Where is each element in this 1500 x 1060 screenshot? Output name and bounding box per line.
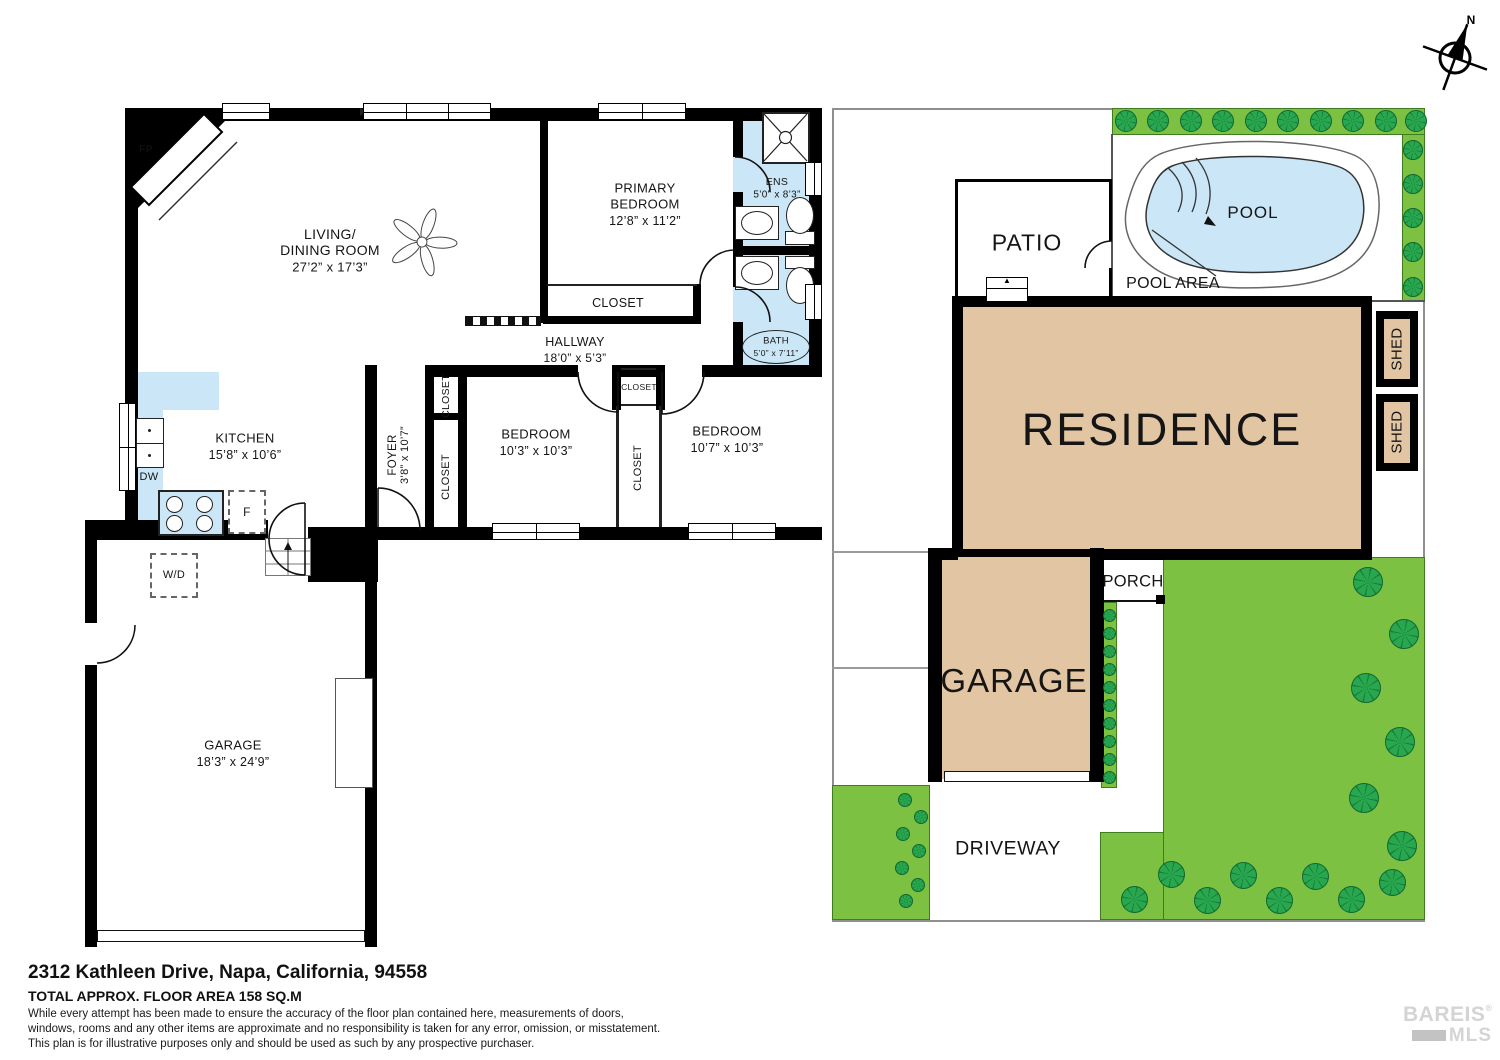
fireplace-label: FP [139,145,152,156]
window-icon [598,103,686,120]
bush-icon [1103,735,1116,748]
tree-icon [1147,110,1169,132]
bush-icon [1103,645,1116,658]
site-garage-door [944,771,1090,782]
logo-suffix: MLS [1449,1026,1492,1045]
door-arc [378,488,420,530]
garage-label: GARAGE [204,738,261,753]
kitchen-label: KITCHEN [215,431,274,446]
shed-2-label: SHED [1389,411,1406,454]
door-opening [83,623,99,665]
window-icon [688,523,776,540]
compass-icon: N [1415,6,1499,96]
wall-segment [702,365,822,377]
wall-segment [543,316,701,324]
site-garage-label: GARAGE [940,662,1087,700]
fridge-label: F [243,505,251,519]
tree-icon [1266,887,1293,914]
half-wall-checker [465,316,541,326]
kitchen-sink [136,418,164,468]
steps-icon [265,538,311,576]
site-garage-wall-stub [928,548,958,560]
window-icon [492,523,580,540]
tree-icon [1403,242,1423,262]
bush-icon [896,827,910,841]
bedroom2-label: BEDROOM [692,424,761,439]
primary-bedroom-label-2: BEDROOM [610,197,679,212]
disclaimer-line-1: While every attempt has been made to ens… [28,1008,624,1020]
bedroom1-dims: 10’3” x 10’3” [500,444,573,458]
floorplan-sheet: N FP [0,0,1500,1060]
tree-icon [1158,861,1185,888]
patio-wall-right-b [1109,268,1112,302]
window-icon [805,284,822,320]
tree-icon [1115,110,1137,132]
stove-icon [158,490,224,536]
bush-icon [914,810,928,824]
door-arc [700,250,735,285]
wall-segment [656,365,665,410]
thin-wall [621,404,656,406]
bush-icon [1103,699,1116,712]
tree-icon [1277,110,1299,132]
kitchen-counter-top [133,372,219,410]
closet-label-1: CLOSET [440,374,452,418]
closet-label-2: CLOSET [440,454,452,500]
residence-label: RESIDENCE [1022,404,1303,456]
tree-icon [1389,619,1419,649]
wall-segment [458,370,467,530]
bush-icon [1103,681,1116,694]
ens-toilet-bowl [786,197,814,234]
wall-segment [612,365,621,410]
garage-recess [335,678,373,788]
disclaimer-line-3: This plan is for illustrative purposes o… [28,1038,534,1050]
logo-reg: ® [1485,1003,1492,1013]
tree-icon [1385,727,1415,757]
tree-icon [1302,863,1329,890]
ceiling-fan-icon [390,210,454,274]
tree-icon [1212,110,1234,132]
hallway-label: HALLWAY [545,335,605,349]
floor-area-text: TOTAL APPROX. FLOOR AREA 158 SQ.M [28,988,302,1004]
fireplace-icon [125,108,243,226]
primary-bedroom-label-1: PRIMARY [614,181,675,196]
bath-sink-basin [741,261,773,285]
living-room-label-1: LIVING/ [304,226,356,242]
wall-segment [733,108,743,157]
patio-wall-right-a [1109,179,1112,241]
bedroom2-dims: 10’7” x 10’3” [691,441,764,455]
tree-icon [1353,567,1383,597]
tree-icon [1338,886,1365,913]
tree-icon [1375,110,1397,132]
primary-bedroom-dims: 12’8” x 11’2” [609,214,681,228]
washer-dryer-label: W/D [163,569,185,581]
bush-icon [1103,771,1116,784]
tree-icon [1403,140,1423,160]
patio-step: ▲ [986,277,1028,302]
bush-icon [912,844,926,858]
lot-line-1 [832,551,931,553]
tree-icon [1379,869,1406,896]
porch-line [1104,600,1164,602]
shower-icon [762,112,810,164]
closet-label-small: CLOSET [621,382,657,392]
garage-dims: 18’3” x 24’9” [197,755,270,769]
porch-label: PORCH [1102,573,1163,592]
logo-brand: BAREIS [1403,1003,1485,1026]
tree-icon [1405,110,1427,132]
patio-label: PATIO [992,230,1063,257]
thin-wall [616,406,619,527]
bush-icon [899,894,913,908]
tree-icon [1310,110,1332,132]
driveway-label: DRIVEWAY [955,838,1061,861]
shed-1-label: SHED [1389,328,1406,371]
living-room-dims: 27’2” x 17’3” [292,260,367,275]
foyer-name: FOYER [387,426,399,484]
window-icon [805,162,822,196]
primary-closet-label: CLOSET [592,296,644,310]
bush-icon [898,793,912,807]
foyer-label: FOYER 3’8” x 10’7” [387,426,411,484]
bath-label: BATH [763,336,789,347]
door-arc [97,625,135,663]
patio-wall-top [955,179,1112,182]
tree-icon [1349,783,1379,813]
bath-dims: 5’0” x 7’11” [753,348,798,358]
ens-sink-basin [741,211,773,235]
kitchen-dims: 15’8” x 10’6” [209,448,282,462]
window-icon [222,103,270,120]
tree-icon [1230,862,1257,889]
bush-icon [1103,627,1116,640]
bedroom1-label: BEDROOM [501,427,570,442]
wall-segment [425,365,434,535]
wall-segment [308,527,378,582]
lot-line-2 [832,667,931,669]
wall-segment [733,246,821,255]
logo-bar [1412,1030,1446,1041]
door-arc [662,372,704,414]
pool-area-label: POOL AREA [1126,275,1220,293]
ens-label: ENS [766,176,789,188]
tree-icon [1403,174,1423,194]
tree-icon [1387,831,1417,861]
garage-door [97,930,365,942]
foyer-dims: 3’8” x 10’7” [399,426,411,484]
closet-label-3: CLOSET [632,445,644,491]
tree-icon [1351,673,1381,703]
bush-icon [1103,717,1116,730]
tree-icon [1403,277,1423,297]
hallway-dims: 18’0” x 5’3” [544,351,607,365]
bush-icon [1103,753,1116,766]
tree-icon [1403,208,1423,228]
thin-wall [621,368,656,370]
tree-icon [1342,110,1364,132]
bush-icon [895,861,909,875]
bareis-mls-logo: BAREIS® MLS [1396,1004,1492,1045]
thin-wall [547,284,697,286]
dishwasher-label: DW [140,471,159,483]
tree-icon [1121,886,1148,913]
tree-icon [1180,110,1202,132]
window-icon [119,403,136,491]
living-room-label-2: DINING ROOM [280,242,380,258]
wall-segment [540,108,548,323]
thin-wall [659,406,662,527]
bush-icon [911,878,925,892]
window-icon [363,103,491,120]
address-title: 2312 Kathleen Drive, Napa, California, 9… [28,962,427,984]
ens-dims: 5’0” x 8’3” [753,190,800,201]
wall-segment [693,284,701,320]
bush-icon [1103,609,1116,622]
bush-icon [1103,663,1116,676]
tree-icon [1245,110,1267,132]
wall-segment [85,535,97,947]
tree-icon [1194,887,1221,914]
patio-wall-left [955,179,958,302]
porch-post [1156,595,1165,604]
pool-label: POOL [1227,203,1278,223]
disclaimer-line-2: windows, rooms and any other items are a… [28,1023,660,1035]
